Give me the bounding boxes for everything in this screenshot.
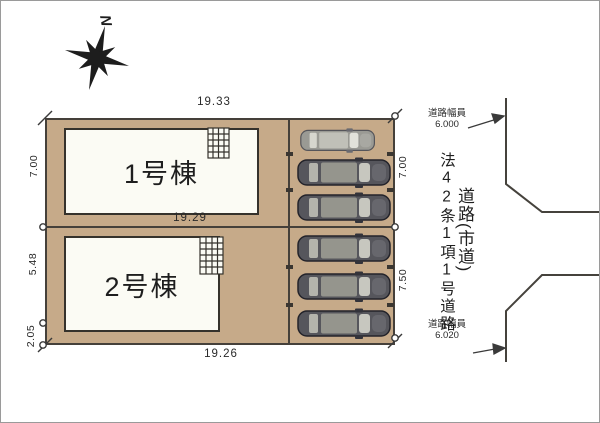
car-icon bbox=[298, 234, 390, 265]
car-icon bbox=[298, 158, 390, 189]
road-type-label: 道路(市道) bbox=[452, 187, 477, 272]
dimension-left-middle: 5.48 bbox=[27, 244, 39, 284]
dimension-bottom-edge: 19.26 bbox=[193, 348, 249, 360]
dimension-middle-edge: 19.29 bbox=[162, 212, 218, 224]
plan-graphics bbox=[1, 1, 600, 423]
car-icon bbox=[298, 309, 390, 340]
road-width-note-top: 道路幅員 6.000 bbox=[415, 108, 479, 131]
building-1-stairs-icon bbox=[208, 128, 229, 158]
dimension-left-lower: 2.05 bbox=[25, 316, 37, 356]
car-icon bbox=[301, 128, 375, 152]
road-width-top-value: 6.000 bbox=[415, 119, 479, 130]
dimension-right-upper: 7.00 bbox=[397, 147, 409, 187]
compass-rose-icon bbox=[57, 18, 137, 98]
dimension-left-upper: 7.00 bbox=[28, 146, 40, 186]
building-2-stairs-icon bbox=[200, 237, 223, 274]
dimension-top-edge: 19.33 bbox=[186, 96, 242, 108]
site-plan-drawing: 1号棟 2号棟 bbox=[0, 0, 600, 423]
road-width-top-label: 道路幅員 bbox=[415, 108, 479, 119]
car-icon bbox=[298, 193, 390, 224]
car-icon bbox=[298, 272, 390, 303]
road-edge-lines bbox=[506, 98, 600, 362]
dimension-right-lower: 7.50 bbox=[397, 260, 409, 300]
